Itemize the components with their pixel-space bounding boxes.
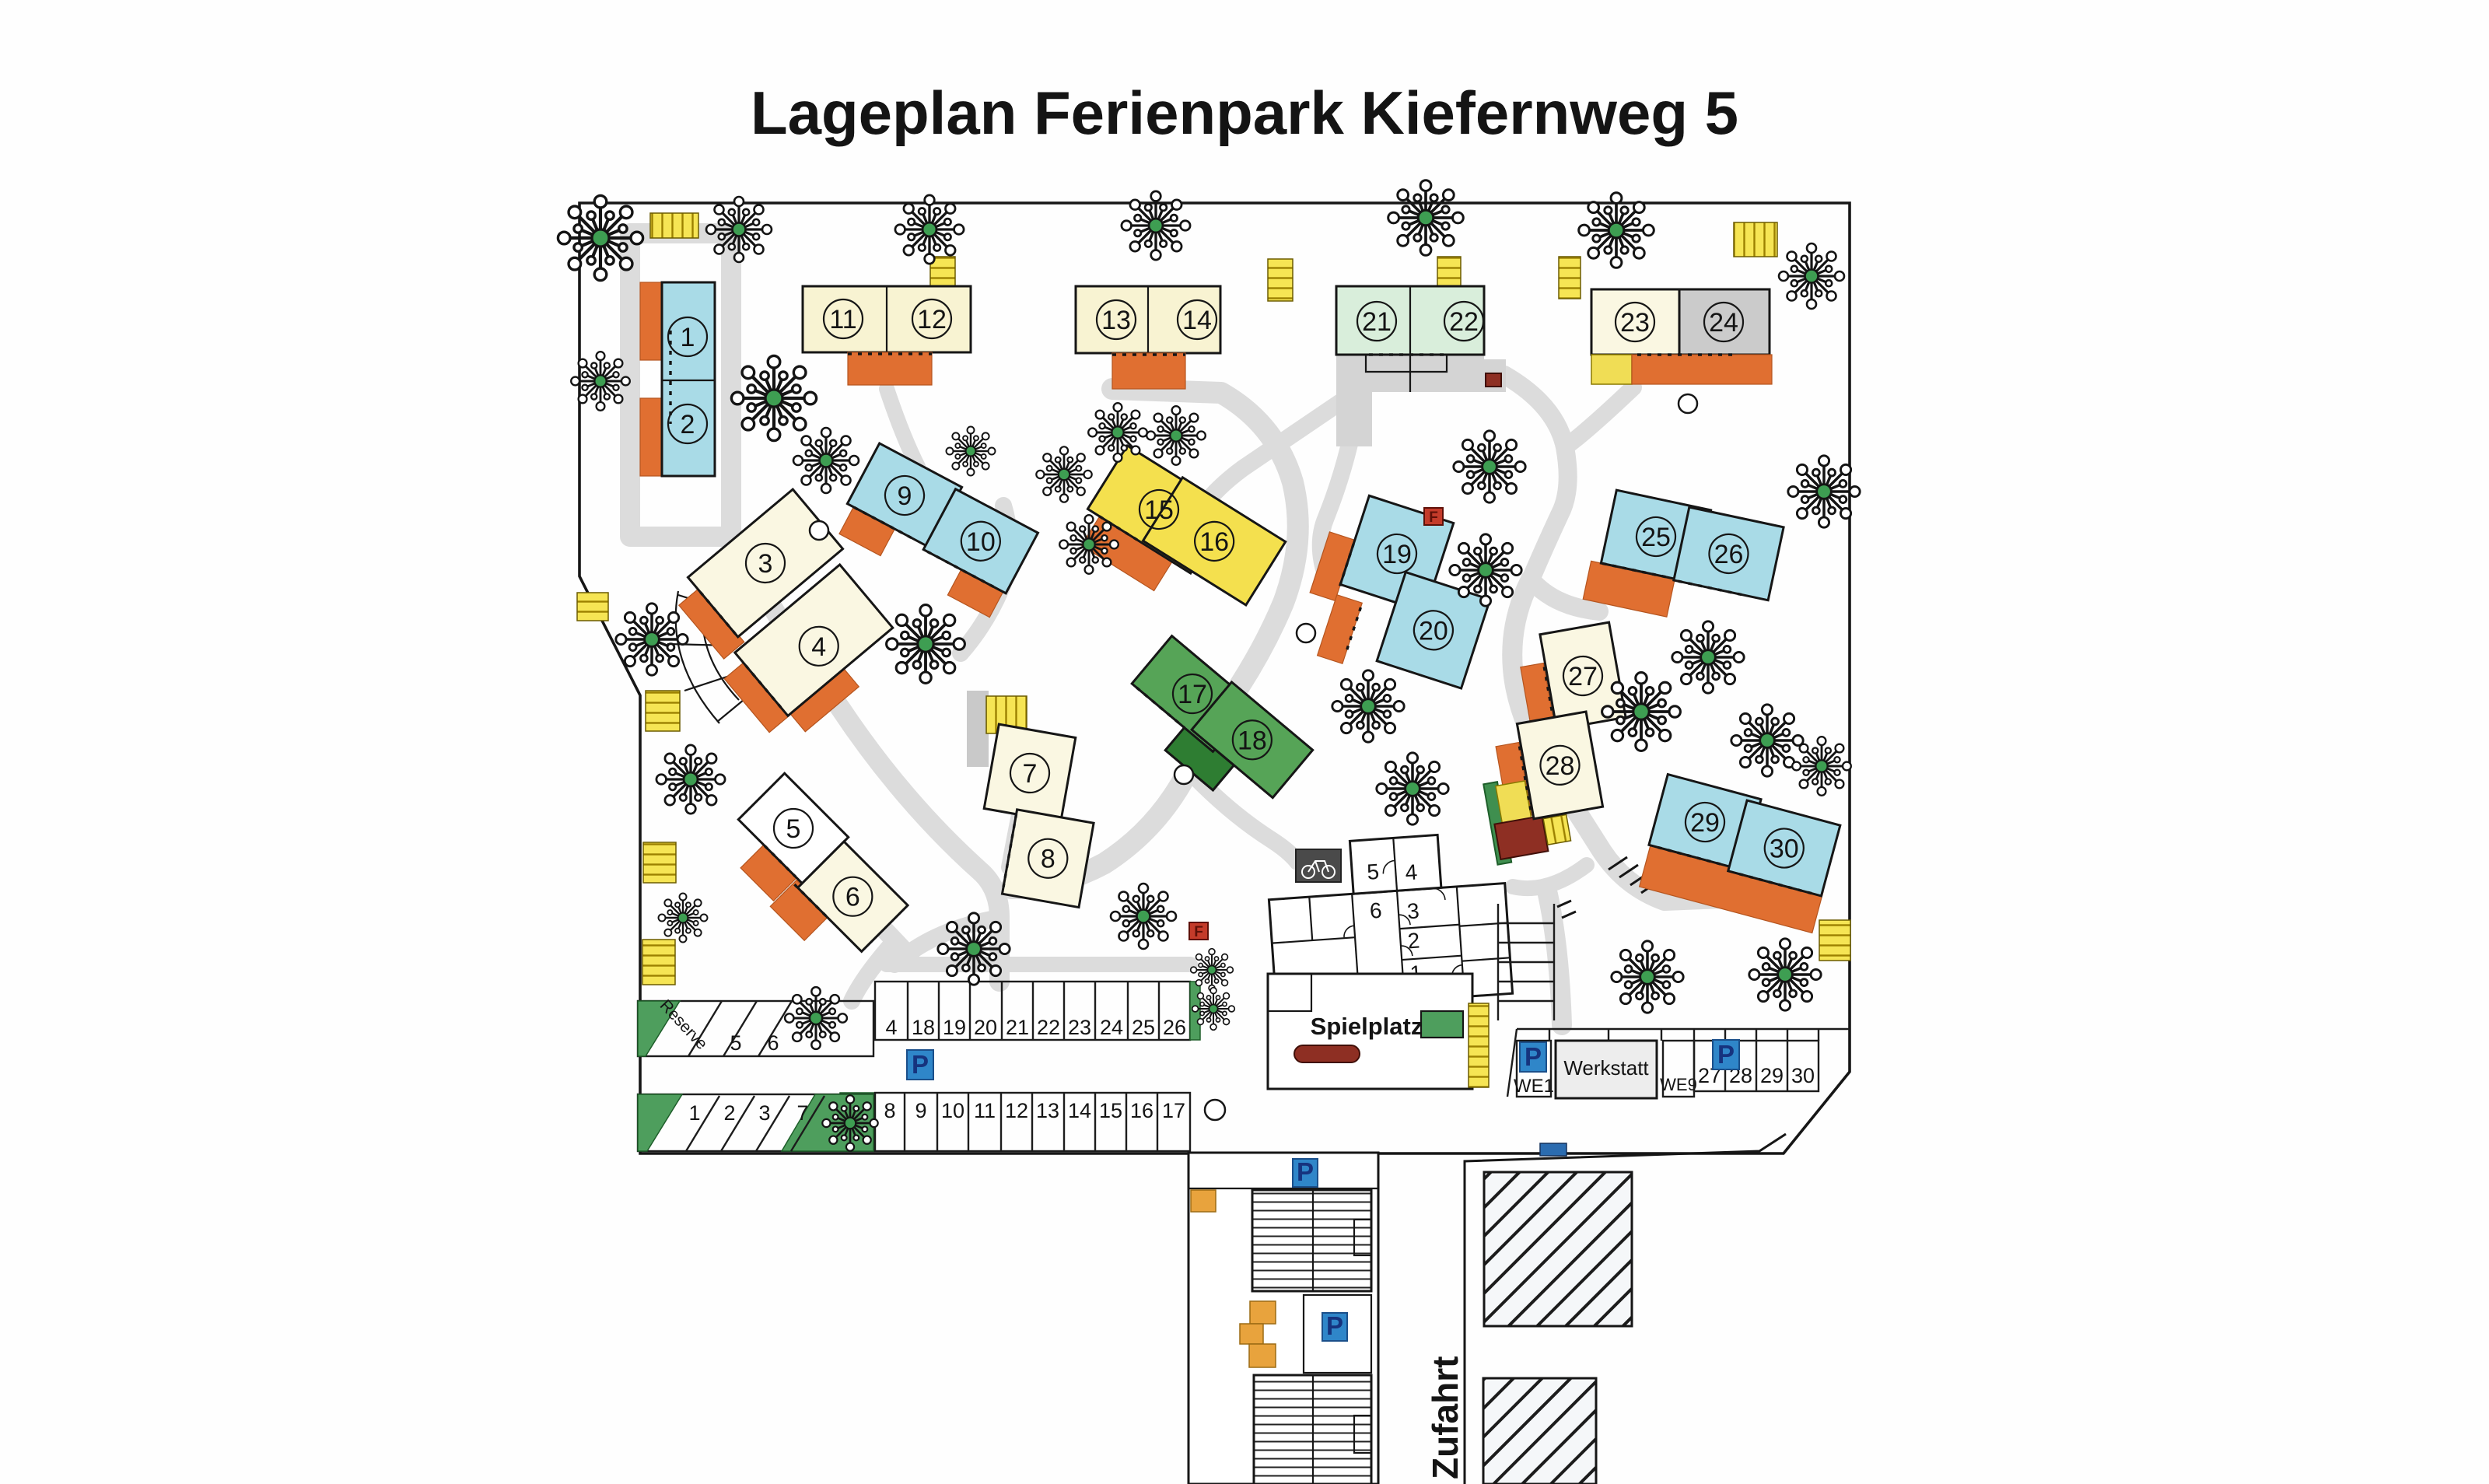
house-13-14: 13 14 bbox=[1076, 286, 1220, 389]
stall-number: 11 bbox=[974, 1099, 996, 1122]
stall-number: 4 bbox=[885, 1016, 897, 1039]
house-number: 22 bbox=[1449, 307, 1479, 337]
neighbour-plot-west: P P bbox=[1188, 1153, 1378, 1484]
stall-number: 23 bbox=[1068, 1016, 1091, 1039]
tree-icon bbox=[1612, 941, 1683, 1013]
house-number: 19 bbox=[1382, 540, 1412, 569]
hydrant-marker: F bbox=[1424, 508, 1443, 526]
house-number: 24 bbox=[1709, 308, 1738, 338]
stall-number: 2 bbox=[723, 1101, 735, 1125]
existing-building bbox=[1484, 1172, 1632, 1326]
tree-icon bbox=[1122, 191, 1190, 260]
tree-icon bbox=[1111, 884, 1176, 949]
house-number: 3 bbox=[758, 549, 773, 579]
neighbour-plot-east bbox=[1465, 1134, 1786, 1484]
tree-icon bbox=[793, 428, 859, 493]
house-number: 4 bbox=[811, 632, 826, 662]
bicycle-shed bbox=[1296, 849, 1341, 882]
page-title: Lageplan Ferienpark Kiefernweg 5 bbox=[751, 79, 1738, 147]
stall-number: 10 bbox=[941, 1099, 964, 1122]
house-number: 30 bbox=[1770, 834, 1799, 863]
stall-number: 3 bbox=[758, 1101, 770, 1125]
parking-sign: P bbox=[1293, 1157, 1318, 1187]
lamp-icon bbox=[1205, 1100, 1225, 1120]
unit-number: 3 bbox=[1406, 898, 1420, 923]
tree-icon bbox=[571, 352, 630, 411]
house-number: 17 bbox=[1178, 680, 1207, 709]
parking-sign: P bbox=[1520, 1042, 1546, 1072]
shelter-icon bbox=[577, 593, 608, 621]
workshop-row: P WE1 Werkstatt WE9 27 28 29 30 P bbox=[1507, 1029, 1850, 1098]
stall-number: 16 bbox=[1130, 1099, 1153, 1122]
tree-icon bbox=[1036, 446, 1091, 502]
unit-number: 2 bbox=[1407, 928, 1421, 953]
stall-number: 26 bbox=[1163, 1016, 1186, 1039]
house-number: 25 bbox=[1641, 523, 1671, 552]
tree-icon bbox=[895, 195, 964, 264]
shelter-icon bbox=[646, 691, 680, 731]
site-plan-drawing: Lageplan Ferienpark Kiefernweg 5 bbox=[0, 0, 2489, 1484]
stall-number: 6 bbox=[767, 1031, 779, 1055]
stall-number: 19 bbox=[943, 1016, 966, 1039]
parking-row-west-upper: Reserve 5 6 bbox=[638, 996, 873, 1056]
shelter-icon bbox=[642, 940, 675, 985]
stall-number: 18 bbox=[912, 1016, 935, 1039]
tree-icon bbox=[706, 197, 772, 262]
house-number: 28 bbox=[1546, 751, 1575, 781]
lamp-icon bbox=[1679, 394, 1697, 413]
house-number: 11 bbox=[829, 305, 856, 334]
stall-number: 30 bbox=[1791, 1064, 1815, 1087]
site-plan-page: Lageplan Ferienpark Kiefernweg 5 bbox=[0, 0, 2489, 1484]
stall-number: 13 bbox=[1036, 1099, 1059, 1122]
lamp-icon bbox=[1297, 624, 1315, 642]
stall-number: 14 bbox=[1068, 1099, 1091, 1122]
tree-icon bbox=[731, 355, 816, 440]
tree-icon bbox=[1788, 456, 1860, 527]
shelter-icon bbox=[1268, 259, 1293, 301]
tree-icon bbox=[1191, 949, 1234, 992]
house-number: 5 bbox=[786, 814, 801, 844]
stall-number: 21 bbox=[1006, 1016, 1029, 1039]
unit-number: 5 bbox=[1366, 859, 1380, 884]
stall-number: 22 bbox=[1037, 1016, 1060, 1039]
stall-number: 7 bbox=[796, 1101, 808, 1125]
unit-number: 6 bbox=[1369, 898, 1383, 923]
parking-sign-label: P bbox=[1525, 1042, 1542, 1071]
house-number: 1 bbox=[681, 323, 695, 352]
stall-number: 1 bbox=[688, 1101, 700, 1125]
stall-label: WE9 bbox=[1660, 1075, 1697, 1094]
house-number: 8 bbox=[1041, 845, 1055, 874]
tree-icon bbox=[558, 195, 642, 280]
tree-icon bbox=[1779, 243, 1844, 309]
stall-number: 8 bbox=[884, 1099, 895, 1122]
hydrant-label: F bbox=[1429, 509, 1438, 526]
unit-number: 4 bbox=[1405, 859, 1419, 884]
gate-marker bbox=[1540, 1143, 1567, 1156]
existing-building bbox=[1483, 1378, 1596, 1484]
shelter-icon bbox=[1559, 257, 1581, 299]
parking-sign: P bbox=[1713, 1040, 1739, 1069]
workshop-label: Werkstatt bbox=[1563, 1056, 1649, 1080]
tree-icon bbox=[887, 605, 965, 684]
playground-label: Spielplatz bbox=[1311, 1013, 1423, 1040]
house-number: 2 bbox=[681, 410, 695, 439]
hydrant-label: F bbox=[1194, 924, 1203, 940]
stall-number: 9 bbox=[915, 1099, 926, 1122]
tree-icon bbox=[785, 987, 847, 1049]
shelter-icon bbox=[650, 213, 698, 238]
driveway-label: Zufahrt bbox=[1425, 1356, 1465, 1479]
stall-number: 15 bbox=[1099, 1099, 1122, 1122]
house-number: 23 bbox=[1620, 308, 1650, 338]
tree-icon bbox=[1579, 193, 1654, 268]
tree-icon bbox=[659, 894, 708, 943]
playground: Spielplatz bbox=[1268, 974, 1489, 1089]
house-1-2: 1 2 bbox=[640, 282, 715, 476]
house-number: 14 bbox=[1182, 306, 1212, 335]
house-27-28: 27 28 bbox=[1460, 622, 1647, 865]
house-number: 10 bbox=[966, 527, 996, 557]
hydrant-marker: F bbox=[1189, 922, 1208, 940]
house-number: 9 bbox=[898, 481, 912, 511]
house-number: 27 bbox=[1568, 662, 1598, 691]
tree-icon bbox=[947, 427, 996, 476]
tree-icon bbox=[1088, 403, 1147, 462]
house-number: 20 bbox=[1419, 616, 1448, 646]
tree-icon bbox=[1192, 988, 1235, 1031]
house-number: 15 bbox=[1144, 495, 1174, 525]
shelter-icon bbox=[643, 842, 676, 883]
stall-number: 12 bbox=[1005, 1099, 1028, 1122]
shelter-icon bbox=[1819, 920, 1850, 961]
parking-row-south: 8 9 10 11 12 13 14 15 16 17 bbox=[840, 1093, 1225, 1151]
stall-number: 29 bbox=[1760, 1064, 1784, 1087]
tree-icon bbox=[1377, 753, 1448, 824]
stall-number: 25 bbox=[1132, 1016, 1155, 1039]
house-25-26: 25 26 bbox=[1583, 488, 1784, 636]
tree-icon bbox=[1749, 939, 1821, 1010]
parking-sign-label: P bbox=[912, 1050, 929, 1079]
tree-icon bbox=[1450, 534, 1521, 606]
house-11-12: 11 12 bbox=[803, 286, 971, 385]
tree-icon bbox=[616, 604, 688, 675]
tree-icon bbox=[938, 913, 1010, 985]
lamp-icon bbox=[1174, 765, 1193, 784]
parking-sign: P bbox=[1322, 1311, 1347, 1341]
tree-icon bbox=[1332, 670, 1404, 742]
stall-number: 5 bbox=[730, 1031, 741, 1055]
house-number: 18 bbox=[1237, 726, 1267, 755]
parking-sign: P bbox=[907, 1050, 933, 1080]
tree-icon bbox=[1146, 406, 1206, 465]
utility-marker bbox=[1486, 373, 1501, 387]
parking-sign-label: P bbox=[1297, 1157, 1314, 1186]
tree-icon bbox=[1388, 180, 1464, 256]
tree-icon bbox=[1059, 515, 1118, 574]
house-number: 21 bbox=[1362, 307, 1392, 337]
house-number: 16 bbox=[1199, 527, 1229, 557]
house-number: 29 bbox=[1690, 808, 1720, 838]
tree-icon bbox=[1792, 737, 1851, 796]
lamp-icon bbox=[810, 521, 828, 540]
shelter-icon bbox=[1734, 222, 1777, 257]
tree-icon bbox=[1602, 673, 1681, 751]
parking-sign-label: P bbox=[1326, 1311, 1343, 1340]
stall-label: WE1 bbox=[1514, 1076, 1554, 1097]
house-number: 7 bbox=[1023, 759, 1038, 789]
tree-icon bbox=[1672, 621, 1744, 693]
tree-icon bbox=[822, 1095, 877, 1150]
house-number: 26 bbox=[1714, 540, 1744, 569]
parking-row-north: 4 18 19 20 21 22 23 24 25 26 bbox=[875, 982, 1200, 1040]
stall-number: 17 bbox=[1162, 1099, 1185, 1122]
stall-number: 20 bbox=[974, 1016, 997, 1039]
house-number: 12 bbox=[917, 305, 947, 334]
tree-icon bbox=[656, 745, 725, 814]
parking-sign-label: P bbox=[1717, 1040, 1735, 1069]
tree-icon bbox=[1454, 431, 1525, 502]
house-number: 6 bbox=[845, 883, 860, 912]
stall-number: 24 bbox=[1100, 1016, 1123, 1039]
house-number: 13 bbox=[1101, 306, 1131, 335]
